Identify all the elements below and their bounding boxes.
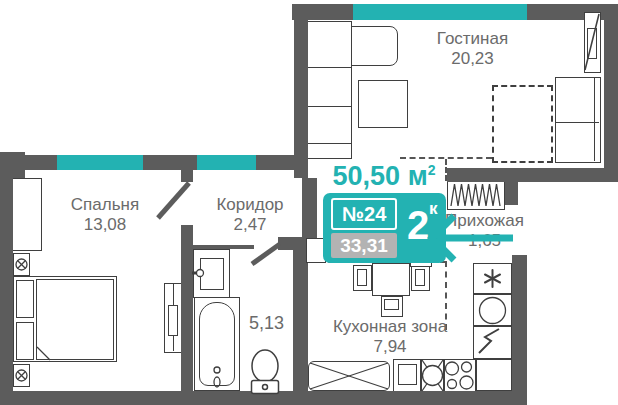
dining-table — [372, 263, 410, 296]
wall-bedroom-corridor — [181, 225, 193, 391]
wall-living-bottom — [447, 168, 618, 182]
total-area-unit: м — [400, 161, 427, 191]
chair-left — [353, 265, 372, 291]
bedroom-door-leaf — [158, 183, 189, 218]
wall-bottom — [0, 391, 527, 405]
bathtub-inner — [199, 302, 235, 386]
apartment-number: №24 — [331, 198, 397, 230]
apartment-sellable-area: 33,31 — [331, 233, 397, 258]
wardrobe — [12, 178, 42, 251]
hallway-name: Прихожая — [432, 211, 537, 231]
pillow-1 — [16, 280, 34, 318]
nightstand-bottom — [13, 364, 30, 387]
window-corridor — [197, 155, 256, 170]
wall-living-left — [294, 4, 308, 178]
chair-right-seat — [415, 269, 425, 286]
living-room-name: Гостиная — [420, 29, 525, 49]
rooms-count-suffix: к — [429, 199, 438, 219]
wall-kitchen-right — [512, 255, 527, 391]
tv-stand — [555, 77, 601, 163]
wall-bedroom-door-jamb — [181, 155, 193, 182]
bedroom-label: Спальня 13,08 — [55, 195, 155, 235]
total-area-sup: 2 — [428, 162, 436, 178]
water-heater — [473, 326, 512, 359]
wall-left — [0, 155, 13, 405]
tv — [584, 12, 601, 73]
toilet — [252, 350, 279, 394]
bathroom-area-label: 5,13 — [239, 313, 294, 333]
kitchen-cabinet-inner — [398, 364, 417, 385]
kitchen-name: Кухонная зона — [330, 317, 450, 337]
sofa-body — [306, 67, 352, 144]
freezer — [473, 263, 512, 294]
stove — [444, 359, 476, 392]
chair-left-seat — [357, 269, 367, 286]
wall-bedroom-top — [0, 155, 302, 170]
hallway-area: 1,65 — [432, 231, 537, 251]
wall-bathroom-right — [293, 250, 308, 391]
hallway-label: Прихожая 1,65 — [432, 211, 537, 251]
tv-stand-shelf-line — [556, 122, 599, 123]
wall-bathroom-top — [193, 245, 254, 249]
coffee-table — [358, 80, 408, 128]
bedroom-area: 13,08 — [55, 215, 155, 235]
kitchen-label: Кухонная зона 7,94 — [330, 317, 450, 357]
window-living — [353, 4, 527, 20]
bathroom-door-leaf — [252, 244, 280, 264]
total-area-value: 50,50 — [333, 161, 401, 191]
kitchen-cabinet — [393, 359, 421, 392]
bedroom-name: Спальня — [55, 195, 155, 215]
window-bedroom — [57, 155, 143, 170]
sofa-corner — [306, 21, 352, 68]
tv-stand-divider — [594, 78, 595, 161]
wall-living-right — [604, 4, 618, 182]
entry-wardrobe-hatch — [447, 180, 505, 210]
sofa-cushion-line — [306, 106, 351, 107]
washing-machine — [473, 294, 512, 326]
dresser-box — [168, 305, 178, 336]
blanket — [36, 279, 114, 360]
kitchen-counter-long — [308, 361, 390, 391]
pillow-2 — [16, 322, 34, 360]
floor-plan: Гостиная 20,23 Спальня 13,08 Коридор 2,4… — [0, 0, 618, 405]
kitchen-sink-unit — [421, 359, 444, 392]
corridor-area: 2,47 — [200, 215, 300, 235]
living-room-area: 20,23 — [420, 49, 525, 69]
corridor-label: Коридор 2,47 — [200, 195, 300, 235]
chair-bottom — [381, 296, 403, 317]
wall-corridor-right — [302, 178, 317, 240]
corridor-name: Коридор — [200, 195, 300, 215]
kitchen-area: 7,94 — [330, 337, 450, 357]
wall-entry-stub — [505, 170, 518, 205]
living-room-label: Гостиная 20,23 — [420, 29, 525, 69]
sink-basin — [200, 258, 224, 290]
nightstand-top — [13, 253, 30, 276]
counter-right — [476, 359, 512, 391]
total-area: 50,50 м2 — [320, 156, 448, 190]
apartment-badge[interactable]: №24 33,31 2 к — [323, 193, 446, 263]
tv-screen — [587, 28, 597, 59]
rug-dashed — [492, 85, 553, 163]
chair-bottom-seat — [384, 299, 399, 310]
chair-right — [411, 265, 430, 291]
